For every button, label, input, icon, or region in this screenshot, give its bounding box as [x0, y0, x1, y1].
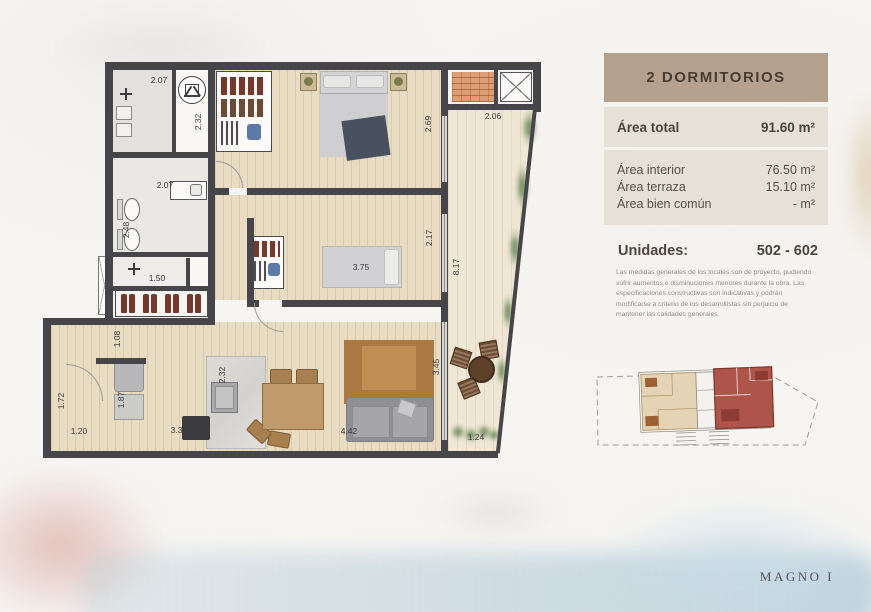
area-row-label: Área bien común [617, 197, 712, 211]
closet-blue-box [268, 263, 280, 276]
watercolor-tan-edge [846, 90, 871, 260]
dim-label: 1.50 [144, 273, 170, 283]
shoe-rack [115, 290, 208, 317]
wall-segment [43, 318, 113, 325]
nightstand-lamp [304, 77, 313, 86]
sliding-door [442, 116, 447, 182]
dim-label: 2.32 [193, 109, 203, 135]
floor-plan: 2.07 2.32 2.07 2.48 1.50 1.08 1.72 1.20 … [0, 0, 560, 480]
wall-segment [448, 104, 538, 110]
area-row: Área bien común - m² [604, 195, 828, 212]
shoe-pair [129, 294, 135, 313]
key-plan-core [696, 372, 716, 429]
unit-type-title: 2 DORMITORIOS [646, 69, 785, 86]
key-plan-furniture [645, 416, 658, 426]
dim-label: 1.87 [116, 387, 126, 413]
laundry-appliance [116, 123, 132, 137]
closet-clothes-row [254, 241, 280, 257]
bed-pillow [384, 249, 399, 285]
wall-segment [247, 188, 448, 195]
wall-segment [494, 70, 498, 106]
rug-inner [362, 346, 416, 390]
shoe-pair [187, 294, 193, 313]
area-detail-box: Área interior 76.50 m² Área terraza 15.1… [604, 150, 828, 225]
dim-label: 2.06 [480, 111, 506, 121]
brick-block [452, 72, 494, 102]
dim-label: 2.48 [121, 217, 131, 243]
wall-segment [105, 62, 541, 70]
wall-segment [215, 188, 229, 195]
bed-throw-blanket [341, 115, 390, 161]
brand-logo: MAGNO I [742, 569, 852, 585]
units-value: 502 - 602 [757, 243, 818, 259]
watercolor-gray-small [430, 488, 560, 538]
dim-label: 1.72 [56, 388, 66, 414]
laundry-appliance [116, 106, 132, 120]
wall-segment [172, 66, 176, 154]
dim-label: 3.75 [348, 262, 374, 272]
wall-segment [105, 62, 113, 324]
closet-clothes-row [221, 77, 265, 95]
wall-segment [105, 286, 215, 291]
area-row: Área interior 76.50 m² [604, 161, 828, 178]
key-plan-furniture [645, 378, 657, 387]
area-row-label: Área terraza [617, 180, 686, 194]
terrace-table [468, 356, 495, 383]
plumbing-icon [128, 263, 140, 275]
closet-blue-box [247, 124, 261, 140]
wall-segment [96, 358, 146, 364]
shoe-pair [121, 294, 127, 313]
dim-label: 2.69 [423, 111, 433, 137]
vanity-sink [190, 184, 202, 196]
dining-chair [270, 369, 292, 384]
area-row-value: 76.50 m² [766, 163, 815, 177]
dining-chair [296, 369, 318, 384]
dim-label: 3.34 [166, 425, 192, 435]
dim-label: 8.17 [451, 254, 461, 280]
units-row: Unidades: 502 - 602 [604, 240, 828, 262]
shoe-pair [195, 294, 201, 313]
closet-hanging-rail [221, 121, 241, 145]
wall-segment [247, 218, 254, 307]
shelf-nook-floor [190, 257, 208, 286]
shoe-pair [143, 294, 149, 313]
kitchen-sink-basin [215, 386, 234, 409]
brochure-page: 2.07 2.32 2.07 2.48 1.50 1.08 1.72 1.20 … [0, 0, 871, 612]
wall-segment [43, 451, 498, 458]
key-plan-furniture [755, 371, 768, 380]
key-plan-stairs [676, 431, 729, 445]
dim-label: 2.07 [152, 180, 178, 190]
watercolor-blue-corner [600, 498, 871, 612]
bed-pillow [323, 75, 351, 88]
shoe-pair [165, 294, 171, 313]
wall-segment [186, 258, 190, 288]
sliding-door [442, 214, 447, 292]
bed-pillow [356, 75, 384, 88]
sliding-door [442, 322, 447, 440]
legal-disclaimer: Las medidas generales de los locales son… [616, 268, 814, 321]
dim-label: 1.08 [112, 326, 122, 352]
area-total-box: Área total 91.60 m² [604, 107, 828, 147]
wall-segment [282, 300, 448, 307]
dim-label: 2.32 [217, 362, 227, 388]
wall-segment [105, 152, 215, 158]
wall-segment [105, 252, 215, 257]
area-row-label: Área interior [617, 163, 685, 177]
closet-hanging-rail [254, 261, 266, 281]
wall-segment [108, 318, 215, 325]
shoe-pair [151, 294, 157, 313]
unit-type-header: 2 DORMITORIOS [604, 53, 828, 102]
plumbing-icon [120, 88, 132, 100]
wall-segment [208, 62, 215, 324]
area-row: Área terraza 15.10 m² [604, 178, 828, 195]
dining-table [262, 383, 324, 430]
dim-label: 4.42 [336, 426, 362, 436]
units-label: Unidades: [618, 243, 688, 259]
area-total-value: 91.60 m² [761, 120, 815, 135]
key-plan [588, 352, 828, 452]
area-row-value: 15.10 m² [766, 180, 815, 194]
dim-label: 2.17 [424, 225, 434, 251]
shoe-pair [173, 294, 179, 313]
nightstand-lamp [394, 77, 403, 86]
dim-label: 2.07 [146, 75, 172, 85]
closet-clothes-row [221, 99, 265, 117]
shaft-box [500, 72, 532, 102]
wall-segment [43, 318, 51, 458]
dim-label: 3.45 [431, 354, 441, 380]
area-total-label: Área total [617, 120, 679, 135]
dim-label: 1.20 [66, 426, 92, 436]
dim-label: 1.24 [463, 432, 489, 442]
key-plan-furniture [721, 409, 739, 422]
area-row-value: - m² [793, 197, 815, 211]
